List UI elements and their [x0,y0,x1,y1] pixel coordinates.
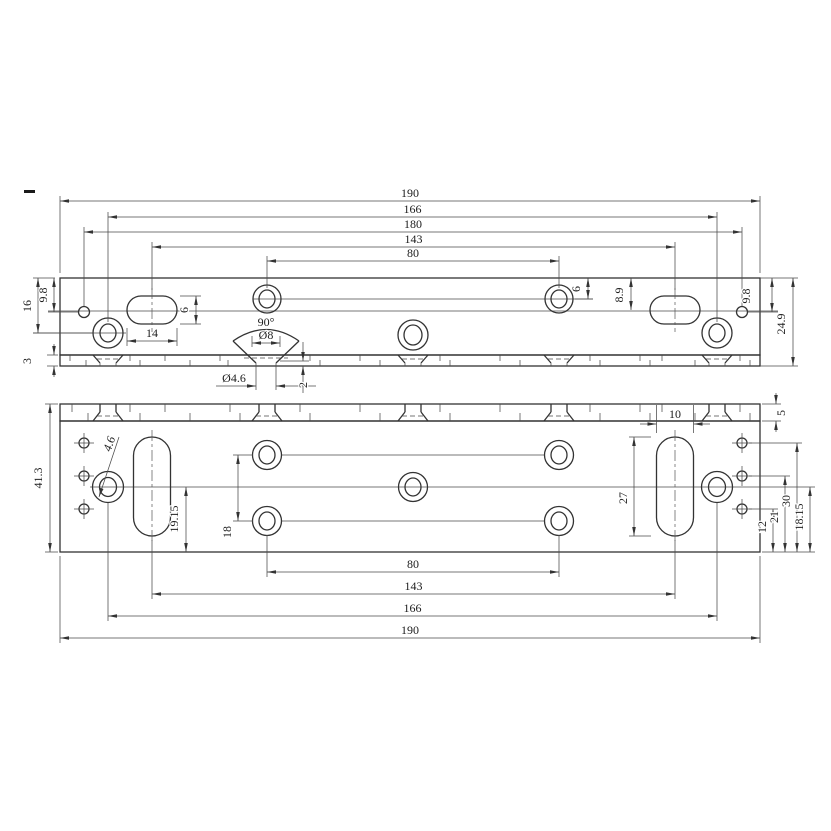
arrowhead [60,636,69,640]
arrowhead [666,245,675,249]
line [233,341,256,363]
leader-4-6: 4.6 [100,434,118,453]
dim-30: 30 [779,495,793,507]
arrowhead [774,395,778,404]
arrowhead [751,636,760,640]
dim-41-3: 41.3 [31,468,45,489]
top-view: 19016618014380169.8368.99.824.914690°Ø8Ø… [20,186,798,393]
arrowhead [708,614,717,618]
dim-80-top: 80 [407,246,419,260]
dim-9-8-left: 9.8 [36,288,50,303]
arrowhead [48,404,52,413]
line [93,412,100,421]
arrowhead [808,543,812,552]
arrowhead [36,278,40,287]
arrowhead [108,614,117,618]
dim-190-top: 190 [401,186,419,200]
arrowhead [629,278,633,287]
line [275,412,282,421]
arrowhead [247,384,256,388]
dim-dia4-6: Ø4.6 [222,371,246,385]
line [702,412,709,421]
stray-mark [24,190,35,193]
dim-depth-2: 2 [296,382,310,388]
line [116,412,123,421]
arrowhead [629,301,633,310]
arrowhead [52,366,56,375]
arrowhead [36,324,40,333]
arrowhead [586,278,590,287]
arrowhead [168,339,177,343]
arrowhead [733,230,742,234]
dim-9-8-right: 9.8 [739,289,753,304]
arrowhead [60,199,69,203]
hole-inner [259,446,275,464]
hole-circle [702,318,732,348]
arrowhead [694,422,703,426]
dim-166-top: 166 [404,202,422,216]
hole-inner [551,446,567,464]
hole-inner [259,512,275,530]
arrowhead [632,527,636,536]
arrowhead [127,339,136,343]
arrowhead [771,543,775,552]
arrowhead [795,443,799,452]
dim-143-bottom: 143 [405,579,423,593]
dim-27: 27 [616,492,630,504]
arrowhead [791,357,795,366]
arrowhead [301,352,305,361]
hole-circle [253,507,282,536]
hole-circle [545,441,574,470]
arrowhead [632,437,636,446]
arrowhead [236,512,240,521]
arrowhead [795,543,799,552]
line [544,412,551,421]
arrowhead [791,278,795,287]
hole-inner [709,324,725,342]
arrowhead [52,278,56,287]
line [398,412,405,421]
arrowhead [267,259,276,263]
dim-90deg: 90° [258,315,275,329]
line [252,412,259,421]
arrowhead [586,290,590,299]
hole-circle [545,507,574,536]
hole-inner [551,512,567,530]
arrowhead [267,570,276,574]
dim-24-9: 24.9 [774,314,788,335]
arrowhead [152,592,161,596]
arrowhead [184,543,188,552]
dim-16: 16 [20,300,34,312]
arrowhead [301,366,305,375]
dim-180-top: 180 [404,217,422,231]
arrowhead [550,259,559,263]
arrowhead [550,570,559,574]
hole-circle [79,307,90,318]
arrowhead [108,215,117,219]
dim-6-slot: 6 [177,307,191,313]
dim-18: 18 [220,526,234,538]
line [421,412,428,421]
dim-8-9: 8.9 [612,288,626,303]
dim-5: 5 [774,410,788,416]
dim-80-bottom: 80 [407,557,419,571]
arrowhead [276,384,285,388]
hole-circle [737,307,748,318]
arrowhead [751,199,760,203]
arrowhead [84,230,93,234]
arrowhead [774,421,778,430]
line [276,341,299,363]
bottom-plate-face [60,421,760,552]
arrowhead [708,215,717,219]
bottom-view: 41.34.619.15182710512213018.158014316619… [31,393,815,643]
line [567,412,574,421]
dim-190-bottom: 190 [401,623,419,637]
dim-3: 3 [20,358,34,364]
arrowhead [194,296,198,305]
dim-166-bottom: 166 [404,601,422,615]
arrowhead [648,422,657,426]
dim-18-15: 18.15 [792,504,806,531]
drawing-page: 19016618014380169.8368.99.824.914690°Ø8Ø… [0,0,831,831]
line [725,412,732,421]
arrowhead [48,543,52,552]
arrowhead [770,278,774,287]
top-plate-face [60,278,760,355]
hole-inner [404,325,422,345]
technical-drawing: 19016618014380169.8368.99.824.914690°Ø8Ø… [0,0,831,831]
arrowhead [783,543,787,552]
arrowhead [783,476,787,485]
dim-21: 21 [767,511,781,523]
dim-14: 14 [146,326,158,340]
dim-143-top: 143 [405,232,423,246]
arrowhead [236,455,240,464]
dim-dia8: Ø8 [259,328,274,342]
dim-10: 10 [669,407,681,421]
dim-6-right: 6 [569,286,583,292]
arrowhead [194,315,198,324]
dim-19-15: 19.15 [167,506,181,533]
arrowhead [808,487,812,496]
arrowhead [52,346,56,355]
arrowhead [184,487,188,496]
arrowhead [666,592,675,596]
arrowhead [152,245,161,249]
hole-circle [253,441,282,470]
